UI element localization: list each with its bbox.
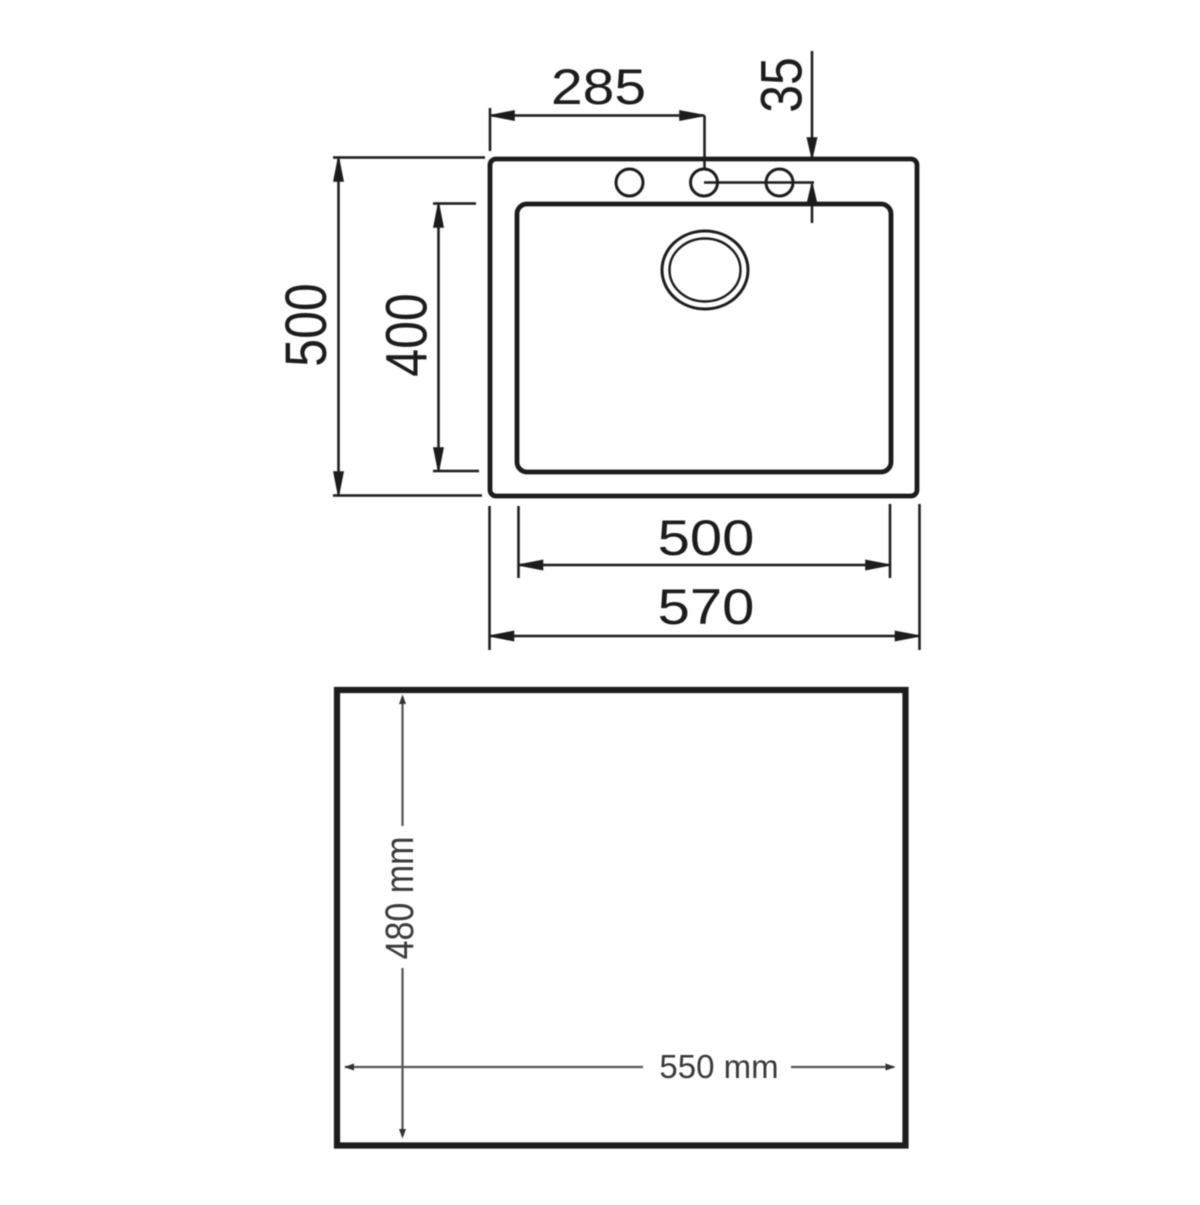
svg-text:480 mm: 480 mm	[376, 837, 421, 960]
svg-text:400: 400	[375, 293, 439, 376]
svg-text:550 mm: 550 mm	[659, 1048, 778, 1085]
svg-text:500: 500	[658, 511, 755, 566]
svg-text:500: 500	[274, 283, 338, 366]
svg-text:285: 285	[551, 59, 646, 115]
svg-text:35: 35	[750, 57, 814, 113]
svg-text:570: 570	[658, 580, 755, 635]
